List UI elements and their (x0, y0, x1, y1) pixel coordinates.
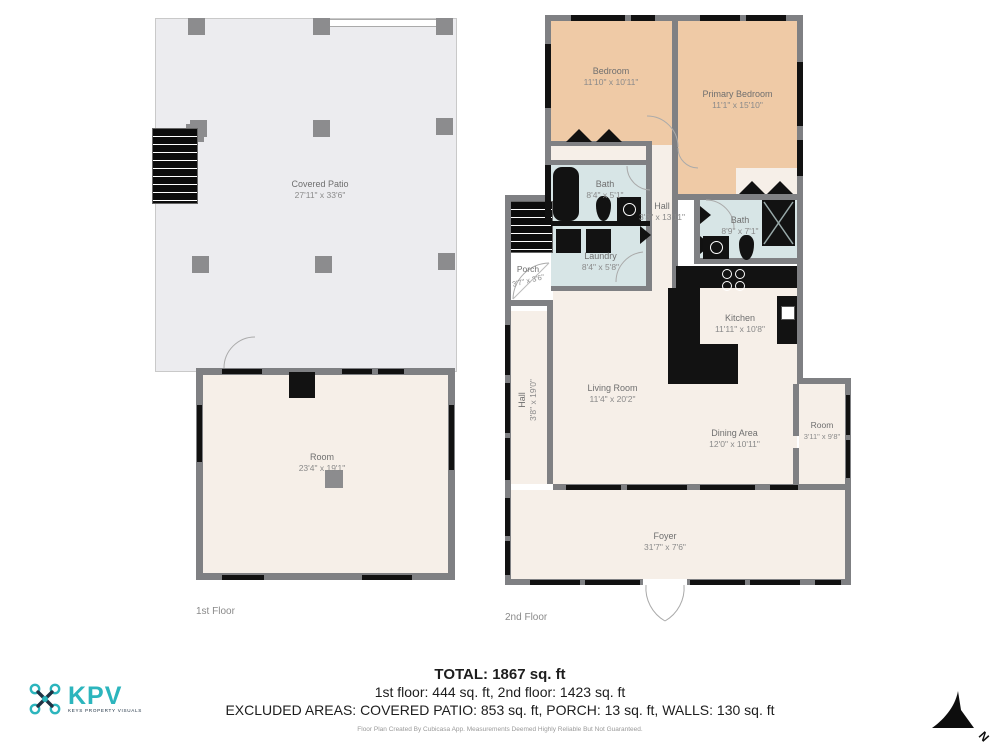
chimney (289, 372, 315, 398)
window-strip (815, 580, 841, 585)
closet-door-marker (767, 181, 793, 194)
window-strip (700, 15, 740, 21)
wall (505, 300, 553, 306)
floor-plan-page: Covered Patio 27'11" x 33'6" Room 23'4" … (0, 0, 1000, 750)
covered-patio-area (155, 18, 457, 372)
window-strip (700, 485, 755, 490)
window-strip (627, 485, 687, 490)
window-strip (571, 15, 625, 21)
window-strip (846, 440, 850, 478)
dining-area (672, 385, 797, 484)
window-strip (342, 369, 372, 374)
sink (617, 197, 641, 221)
sink (703, 236, 729, 259)
closet-door-marker (596, 129, 622, 142)
patio-post (436, 118, 453, 135)
wall (793, 384, 799, 436)
area-summary: TOTAL: 1867 sq. ft 1st floor: 444 sq. ft… (0, 666, 1000, 719)
porch-area (511, 254, 551, 300)
window-strip (222, 575, 264, 580)
wall (547, 305, 553, 484)
entry-door-gap (643, 579, 687, 585)
bathtub (553, 167, 579, 221)
window-strip (362, 575, 412, 580)
window-strip (770, 485, 798, 490)
wall (797, 378, 851, 384)
north-label: N (976, 729, 990, 742)
window-strip (530, 580, 580, 585)
patio-post (188, 18, 205, 35)
wall (672, 21, 678, 145)
logo-name: KPV (68, 685, 142, 708)
window-strip (505, 541, 510, 575)
living-room-area (553, 290, 672, 484)
patio-post (438, 253, 455, 270)
total-area-text: TOTAL: 1867 sq. ft (0, 666, 1000, 684)
closet-door-marker (739, 181, 765, 194)
window-strip (505, 383, 510, 433)
hall1-area (652, 145, 672, 290)
window-strip (846, 395, 850, 435)
room-post (325, 470, 343, 488)
north-arrow: N (928, 686, 990, 742)
window-strip (797, 62, 803, 126)
bedroom-area (551, 21, 672, 145)
window-strip (797, 140, 803, 176)
shower (762, 200, 795, 246)
kpv-logo: KPV KEYS PROPERTY VISUALS (28, 682, 142, 716)
stove-burners-icon (722, 269, 746, 291)
window-strip (585, 580, 640, 585)
door-arcs (0, 0, 1000, 750)
door-marker (700, 206, 711, 224)
window-strip (566, 485, 621, 490)
laundry-counter (551, 221, 650, 226)
patio-post (315, 256, 332, 273)
disclaimer-text: Floor Plan Created By Cubicasa App. Meas… (0, 726, 1000, 733)
drone-icon (28, 682, 62, 716)
exterior-stairs (152, 128, 198, 204)
window-strip (746, 15, 786, 21)
patio-post (313, 120, 330, 137)
first-floor-label: 1st Floor (196, 606, 235, 617)
excluded-areas-text: EXCLUDED AREAS: COVERED PATIO: 853 sq. f… (0, 702, 1000, 720)
second-floor-label: 2nd Floor (505, 612, 547, 623)
patio-railing (330, 19, 440, 27)
wall (546, 160, 652, 165)
kitchen-appliance (777, 296, 797, 344)
kitchen-island (668, 344, 738, 384)
window-strip (631, 15, 655, 21)
patio-post (313, 18, 330, 35)
window-strip (222, 369, 262, 374)
window-strip (750, 580, 800, 585)
patio-post (192, 256, 209, 273)
window-strip (505, 498, 510, 536)
window-strip (545, 165, 551, 220)
window-strip (505, 438, 510, 480)
north-arrow-shape (932, 691, 974, 728)
window-strip (378, 369, 404, 374)
door-marker (640, 226, 651, 244)
window-strip (197, 405, 202, 462)
wall (646, 145, 652, 290)
appliance-detail (781, 306, 795, 320)
room-right-area (799, 384, 845, 484)
window-strip (449, 405, 454, 470)
washer (556, 229, 581, 253)
window-strip (505, 325, 510, 375)
patio-post (436, 18, 453, 35)
wall (551, 286, 652, 291)
wall (793, 448, 799, 488)
window-strip (545, 44, 551, 108)
closet-door-marker (566, 129, 592, 142)
dryer (586, 229, 611, 253)
hall2-area (511, 311, 547, 484)
kitchen-counter (668, 288, 700, 346)
floor-areas-text: 1st floor: 444 sq. ft, 2nd floor: 1423 s… (0, 684, 1000, 702)
foyer-area (511, 490, 849, 579)
logo-tagline: KEYS PROPERTY VISUALS (68, 708, 142, 713)
window-strip (690, 580, 745, 585)
